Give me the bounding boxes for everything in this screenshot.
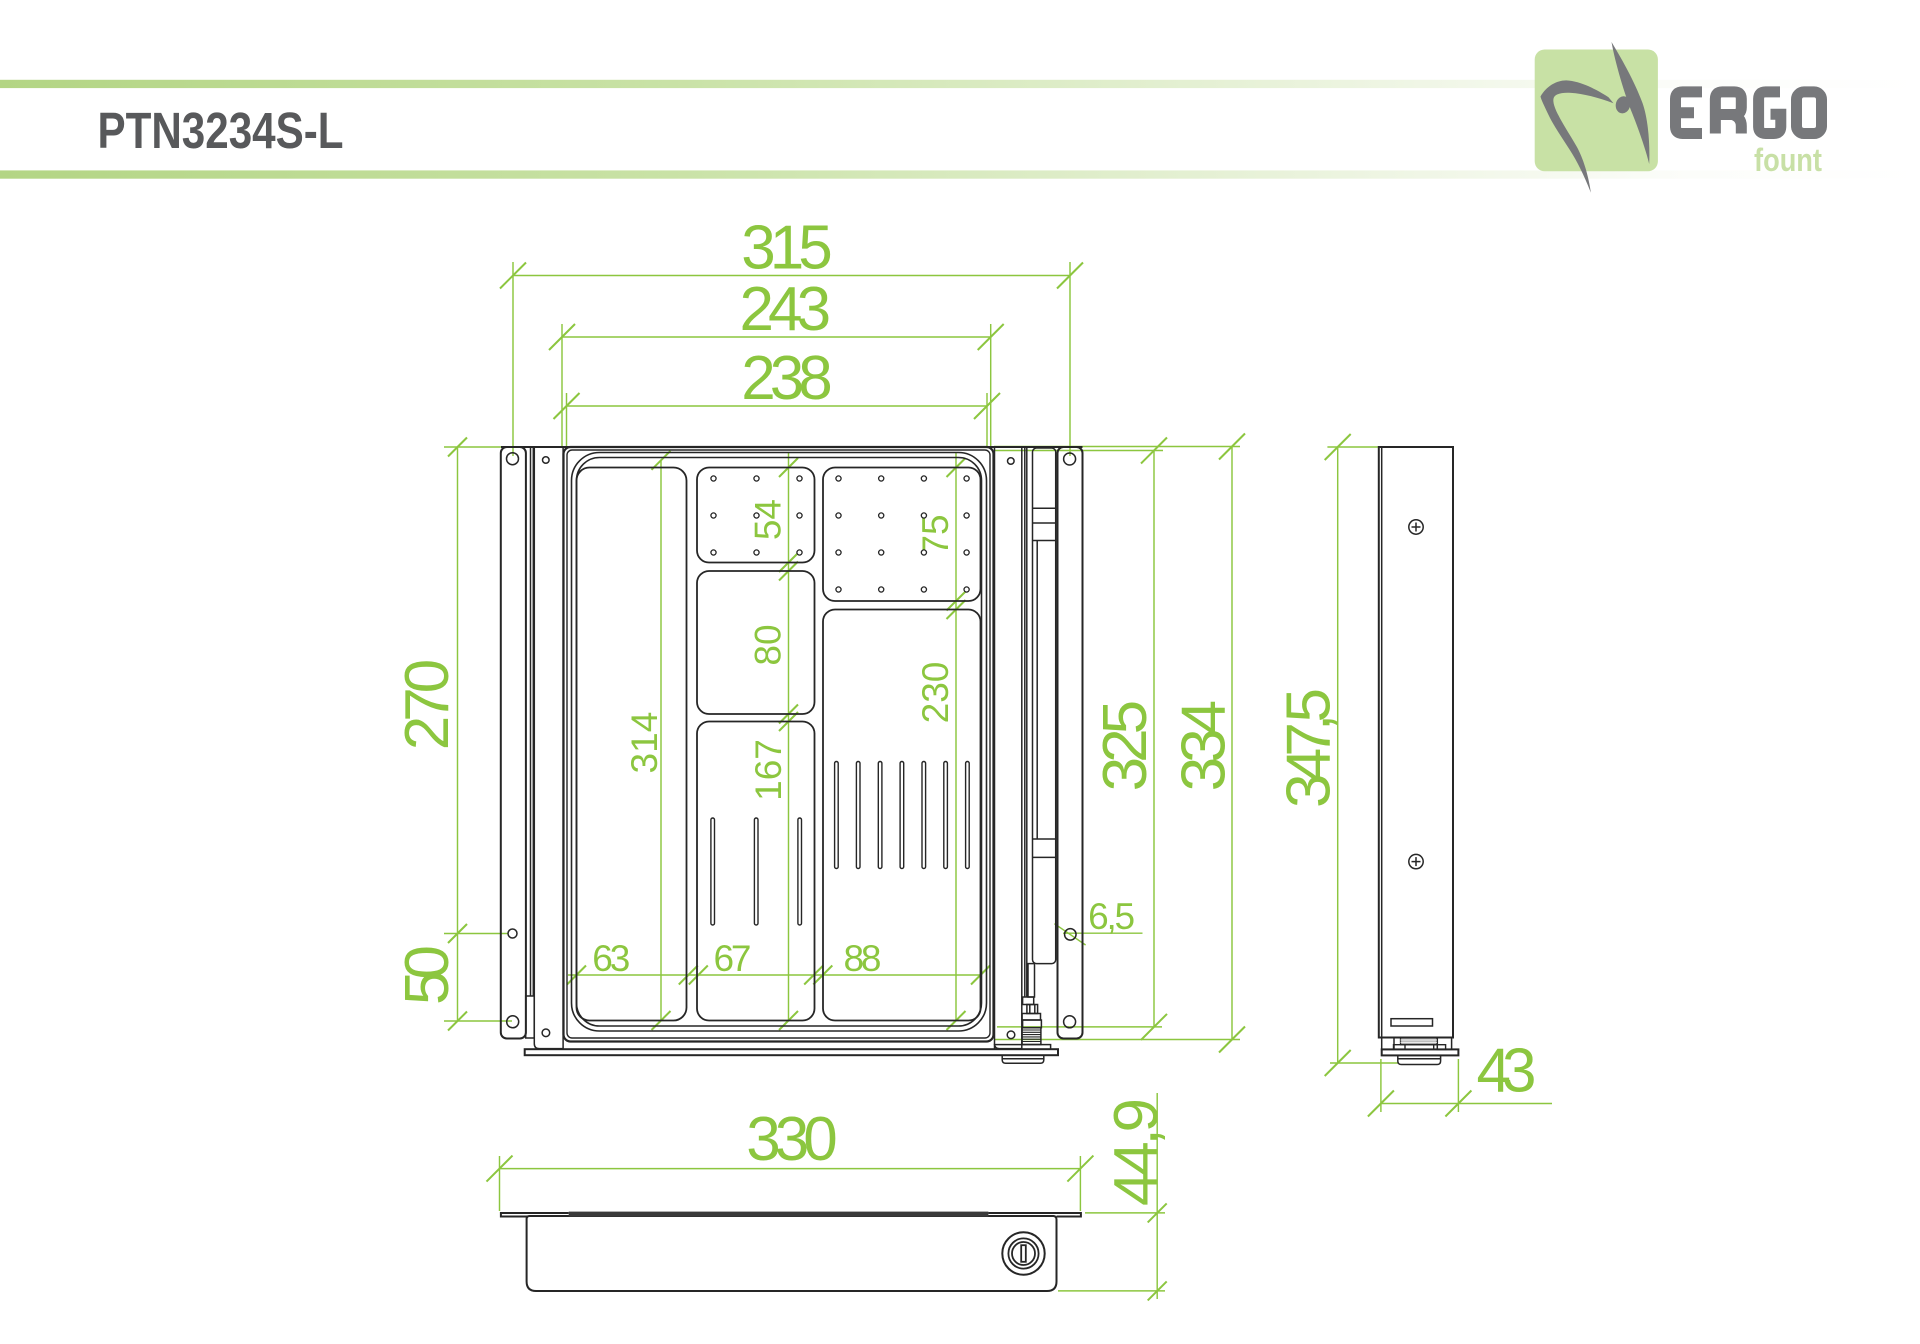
svg-text:270: 270 — [393, 659, 462, 751]
svg-text:54: 54 — [748, 499, 789, 540]
svg-text:80: 80 — [748, 624, 789, 665]
svg-text:230: 230 — [915, 662, 956, 724]
svg-text:6,5: 6,5 — [1088, 896, 1135, 937]
svg-text:314: 314 — [624, 712, 665, 774]
svg-text:238: 238 — [741, 344, 833, 413]
svg-text:88: 88 — [844, 938, 882, 979]
svg-text:315: 315 — [741, 213, 833, 282]
svg-text:243: 243 — [740, 275, 832, 344]
svg-text:50: 50 — [393, 945, 462, 1005]
svg-text:330: 330 — [746, 1105, 838, 1174]
svg-text:PTN3234S-L: PTN3234S-L — [98, 102, 344, 159]
svg-text:334: 334 — [1169, 700, 1238, 792]
svg-text:325: 325 — [1091, 700, 1160, 792]
svg-text:75: 75 — [915, 514, 956, 555]
svg-text:fount: fount — [1754, 142, 1822, 178]
svg-text:44,9: 44,9 — [1102, 1098, 1171, 1206]
svg-text:167: 167 — [748, 739, 789, 801]
svg-text:43: 43 — [1477, 1036, 1537, 1105]
svg-text:347,5: 347,5 — [1275, 688, 1344, 808]
svg-text:63: 63 — [592, 938, 630, 979]
svg-text:67: 67 — [714, 938, 752, 979]
